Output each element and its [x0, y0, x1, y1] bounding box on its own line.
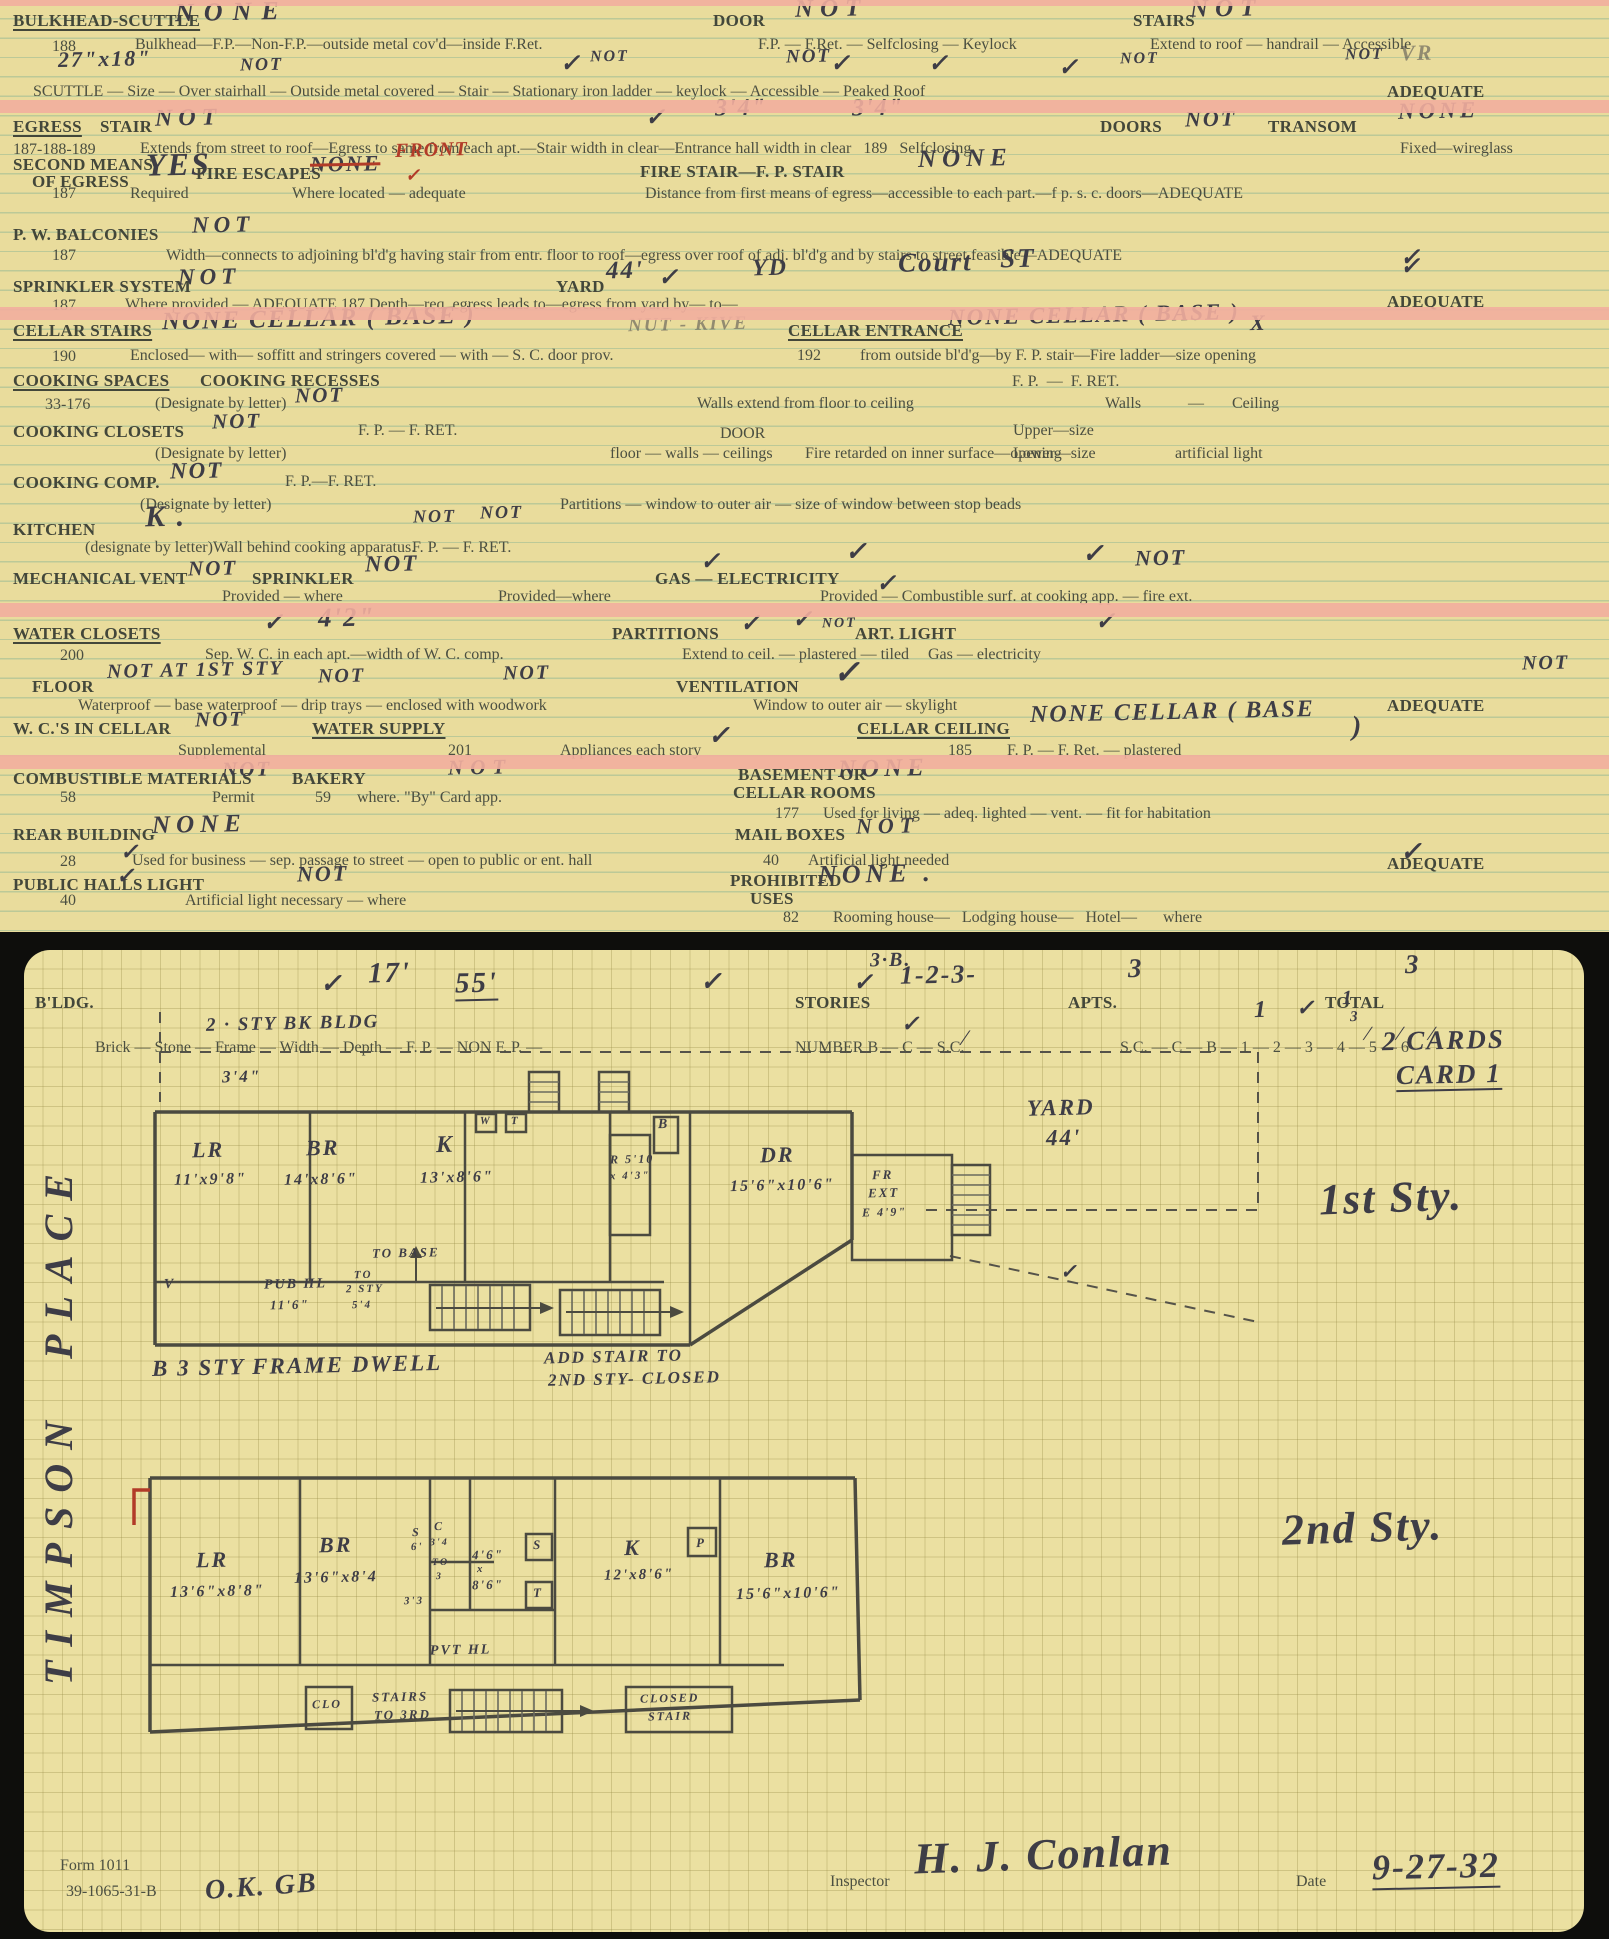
checkmark: ✓ [1058, 56, 1081, 82]
note-adjacent-building: 2 · STY BK BLDG [206, 1012, 380, 1036]
pink-rule [0, 603, 1609, 617]
value-mail-boxes: NOT [856, 813, 920, 837]
checkmark: ✓ [658, 266, 681, 292]
checkmark: ✓ [928, 52, 951, 78]
handwritten-note: 5'4 [352, 1300, 372, 1312]
value-floor: NOT AT 1ST STY [107, 658, 284, 683]
handwritten-note: x [477, 1564, 485, 1576]
value-yard-depth: 44' [606, 258, 644, 285]
label-cooking-spaces: COOKING SPACES [13, 372, 169, 390]
handwritten-note: VR [1400, 41, 1434, 65]
form-caption: Gas — electricity [928, 647, 1041, 664]
label-bldg: B'LDG. [35, 994, 94, 1012]
form-caption: Permit [212, 790, 255, 807]
value-wc-in-cellar: NOT [195, 707, 245, 730]
label-pw-balconies: P. W. BALCONIES [13, 226, 159, 244]
value-sprinkler: NOT [365, 551, 419, 576]
handwritten-note: NOT [1522, 653, 1570, 675]
form-label: OF EGRESS [32, 173, 129, 191]
floor-plan-drawing [24, 950, 1584, 1932]
label-mechanical-vent: MECHANICAL VENT [13, 570, 188, 588]
checkmark: ✓ [405, 166, 422, 185]
checkmark: ✓ [845, 538, 869, 566]
handwritten-note: 13'6"x8'8" [170, 1583, 265, 1602]
street-name: TIMPSON PLACE [38, 1160, 80, 1685]
label-yard-plan: YARD [1027, 1095, 1095, 1121]
form-label: ADEQUATE [1387, 855, 1485, 873]
form-caption: Distance from first means of egress—acce… [645, 186, 1243, 203]
form-caption: Extends from street to roof—Egress to sa… [140, 141, 971, 158]
value-cellar-ceiling: NONE CELLAR ( BASE [1030, 697, 1315, 728]
label-mail-boxes: MAIL BOXES [735, 826, 845, 844]
handwritten-note: 1 [1342, 988, 1354, 1009]
form-caption: Used for business — sep. passage to stre… [132, 853, 592, 870]
checkmark: ✓ [1082, 540, 1106, 568]
form-caption: 187 [52, 248, 76, 265]
handwritten-note: 13'x8'6" [420, 1169, 494, 1187]
label-cooking-recesses: COOKING RECESSES [200, 372, 380, 390]
value-cooking-closets: NOT [212, 409, 262, 432]
label-stories: STORIES [795, 994, 871, 1012]
form-caption: 192 [797, 348, 821, 365]
form-caption: where. "By" Card app. [357, 790, 502, 807]
handwritten-note: V [164, 1278, 176, 1293]
form-caption: F. P. — F. RET. [1012, 374, 1119, 391]
label-second-story: 2nd Sty. [1281, 1502, 1444, 1554]
form-caption: Ceiling [1232, 396, 1279, 413]
handwritten-note: E 4'9" [862, 1206, 907, 1220]
handwritten-note: 13'6"x8'4 [294, 1569, 378, 1588]
label-cooking-comp: COOKING COMP. [13, 474, 160, 492]
handwritten-note: 14'x8'6" [284, 1171, 358, 1189]
handwritten-note: 3'4 [430, 1538, 449, 1549]
form-caption: SCUTTLE — Size — Over stairhall — Outsid… [33, 84, 925, 101]
handwritten-note: T [511, 1116, 520, 1128]
handwritten-note: CLOSED [640, 1691, 700, 1705]
note-ok: O.K. GB [204, 1868, 319, 1905]
label-ventilation: VENTILATION [676, 678, 799, 696]
handwritten-note: ∕ [963, 1026, 969, 1049]
value-fire-stair: NONE [918, 145, 1013, 173]
form-caption: Lower—size [1013, 446, 1096, 463]
handwritten-note: NOT [480, 503, 523, 523]
checkmark: ✓ [1400, 246, 1423, 272]
value-public-halls-light: NOT [297, 861, 349, 885]
label-cellar-ceiling: CELLAR CEILING [857, 720, 1010, 738]
handwritten-note: 11'x9'8" [174, 1171, 247, 1189]
value-cooking-comp: NOT [170, 458, 224, 483]
label-date: Date [1296, 1874, 1326, 1891]
handwritten-note: NOT [503, 663, 551, 685]
form-caption: 177 [775, 806, 799, 823]
room-label: BR [319, 1533, 353, 1557]
label-water-closets: WATER CLOSETS [13, 625, 161, 643]
handwritten-note: NOT [590, 49, 629, 67]
label-inspector: Inspector [830, 1874, 890, 1891]
form-caption: Partitions — window to outer air — size … [560, 497, 1021, 514]
handwritten-note: PUB HL [264, 1277, 327, 1293]
handwritten-note: 15'6"x10'6" [736, 1585, 841, 1604]
room-label: K [624, 1536, 641, 1559]
form-caption: 187 [52, 186, 76, 203]
form-caption: 40 [60, 893, 76, 910]
label-combustible-materials: COMBUSTIBLE MATERIALS [13, 770, 252, 788]
handwritten-note: TO [432, 1558, 449, 1569]
form-caption: 200 [60, 648, 84, 665]
label-egress: EGRESS [13, 118, 82, 136]
handwritten-note: TO [354, 1270, 373, 1282]
label-bulkhead-scuttle: BULKHEAD-SCUTTLE [13, 12, 200, 30]
pink-rule [0, 100, 1609, 113]
label-yard: YARD [556, 278, 605, 296]
handwritten-note: NOT [1120, 51, 1159, 69]
handwritten-note: 6' [411, 1542, 424, 1554]
pink-rule [0, 755, 1609, 769]
label-sprinkler-system: SPRINKLER SYSTEM [13, 278, 191, 296]
form-caption: Rooming house— Lodging house— Hotel— [833, 910, 1137, 927]
form-caption: Bulkhead—F.P.—Non-F.P.—outside metal cov… [135, 37, 542, 54]
value-rear-building: NONE [152, 811, 247, 839]
handwritten-note: STAIR [648, 1710, 692, 1724]
handwritten-note: 11'6" [270, 1298, 310, 1312]
form-number: Form 1011 [60, 1858, 130, 1875]
form-caption: floor — walls — ceilings [610, 446, 773, 463]
form-caption: F. P. — F. RET. [358, 423, 457, 440]
label-transom: TRANSOM [1268, 118, 1357, 136]
label-water-supply: WATER SUPPLY [312, 720, 446, 738]
handwritten-note: FR [872, 1168, 894, 1182]
label-art-light: ART. LIGHT [855, 625, 956, 643]
label-egress-stair: STAIR [100, 118, 152, 136]
date-value: 9-27-32 [1372, 1847, 1501, 1890]
handwritten-note: NOT [822, 617, 857, 632]
label-door: DOOR [713, 12, 765, 30]
checkmark: ✓ [708, 722, 732, 750]
form-caption: 33-176 [45, 397, 90, 414]
handwritten-note: ∕ [1366, 1024, 1372, 1045]
form-caption: Fixed—wireglass [1400, 141, 1513, 158]
label-cooking-closets: COOKING CLOSETS [13, 423, 184, 441]
handwritten-note: T [533, 1586, 543, 1600]
handwritten-note: NOT [1345, 47, 1384, 65]
handwritten-note: 1 [1254, 998, 1269, 1023]
form-caption: Walls extend from floor to ceiling [697, 396, 914, 413]
form-caption: (designate by letter) [85, 540, 213, 557]
form-caption: 58 [60, 790, 76, 807]
handwritten-note: 2 STY [346, 1284, 384, 1296]
handwritten-note: 8'6" [472, 1578, 504, 1592]
checkmark: ✓ [700, 550, 723, 576]
handwritten-note: 4'6" [472, 1548, 504, 1562]
value-egress-from-yard: Court [898, 247, 973, 277]
handwritten-note: S [533, 1538, 543, 1552]
value-scuttle-size: 27"x18" [58, 46, 152, 71]
checkmark: ✓ [320, 970, 344, 998]
value-fire-escapes: FRONT [395, 139, 468, 162]
handwritten-note: 3'4" [222, 1068, 262, 1087]
note-building-type: B 3 STY FRAME DWELL [152, 1351, 443, 1381]
handwritten-note: C [434, 1520, 444, 1533]
value-prohibited-uses: NONE . [818, 859, 935, 889]
room-label: LR [196, 1548, 229, 1572]
handwritten-note: EXT [868, 1186, 900, 1200]
handwritten-note: NOT [1135, 545, 1187, 569]
form-caption: F. P. — F. RET. [412, 540, 511, 557]
handwritten-note: NOT [413, 507, 456, 527]
handwritten-note: 3 [436, 1572, 443, 1583]
handwritten-note: 3 [1350, 1010, 1360, 1026]
form-caption: 28 [60, 854, 76, 871]
room-label: LR [192, 1138, 225, 1162]
scanned-inspection-card-page: { "document": { "type": "Tenement house … [0, 0, 1609, 1939]
note-card-number: CARD 1 [1396, 1059, 1502, 1093]
handwritten-note: 15'6"x10'6" [730, 1177, 835, 1196]
handwritten-note: PVT HL [430, 1643, 492, 1659]
value-sprinkler-system: NOT [178, 264, 241, 289]
value-egress-leads-to: YD [752, 256, 789, 282]
inspection-form-card: BULKHEAD-SCUTTLENONEDOORNOTSTAIRSNOT188B… [0, 0, 1609, 932]
form-caption: F. P.—F. RET. [285, 474, 376, 491]
handwritten-note: 2ND STY- CLOSED [548, 1368, 721, 1389]
form-code: 39-1065-31-B [66, 1884, 157, 1901]
note-stair-closed: ADD STAIR TO [544, 1347, 683, 1368]
form-caption: Width—connects to adjoining bl'd'g havin… [166, 248, 1122, 265]
form-caption: Waterproof — base waterproof — drip tray… [78, 698, 547, 715]
handwritten-note: TO 3RD [374, 1707, 431, 1722]
handwritten-note: NOT [318, 666, 366, 688]
note-cards: 2 CARDS [1382, 1025, 1505, 1056]
form-caption: 40 [763, 853, 779, 870]
label-partitions: PARTITIONS [612, 625, 719, 643]
handwritten-note: STAIRS [372, 1689, 428, 1704]
value-total: 3 [1405, 950, 1421, 979]
room-label: BR [306, 1136, 340, 1160]
handwritten-note: 3'3 [404, 1596, 424, 1608]
handwritten-note: CLO [312, 1698, 342, 1711]
value-pw-balconies: NOT [192, 212, 255, 237]
checkmark: ✓ [1296, 996, 1317, 1020]
label-floor: FLOOR [32, 678, 94, 696]
pink-rule [0, 0, 1609, 6]
value-cooking-recesses: NOT [295, 383, 345, 406]
handwritten-note: NOT [786, 47, 831, 68]
label-apts: APTS. [1068, 994, 1117, 1012]
label-stairs: STAIRS [1133, 12, 1195, 30]
label-cellar-entrance: CELLAR ENTRANCE [788, 322, 963, 340]
label-kitchen: KITCHEN [13, 521, 95, 539]
label-sprinkler: SPRINKLER [252, 570, 354, 588]
inspector-signature: H. J. Conlan [913, 1827, 1173, 1882]
form-caption: from outside bl'd'g—by F. P. stair—Fire … [860, 348, 1256, 365]
checkmark: ✓ [116, 864, 137, 888]
form-label: CELLAR ROOMS [733, 784, 876, 802]
form-caption: Artificial light necessary — where [185, 893, 406, 910]
handwritten-note: NOT [240, 55, 283, 75]
floor-plan-card: B'LDG.✓17'55'✓STORIES3·B.✓1-2-3-APTS.3TO… [24, 950, 1584, 1932]
value-depth: 55' [455, 968, 499, 1002]
form-caption: 59 [315, 790, 331, 807]
checkmark: ✓ [833, 656, 863, 690]
checkmark: ✓ [700, 968, 724, 996]
checkmark: ✓ [830, 52, 853, 78]
form-caption: NUMBER B — C — S.C. [795, 1040, 964, 1057]
form-caption: Brick — Stone — Frame — Width — Depth — … [95, 1040, 542, 1057]
value-apts: 3 [1128, 954, 1144, 983]
label-doors: DOORS [1100, 118, 1162, 136]
handwritten-note: ST [1000, 244, 1036, 273]
form-caption: 190 [52, 349, 76, 366]
form-caption: Window to outer air — skylight [753, 698, 957, 715]
handwritten-note: R 5'10 [610, 1153, 655, 1167]
checkmark: ✓ [1060, 1262, 1079, 1283]
form-caption: artificial light [1175, 446, 1263, 463]
handwritten-note: B [658, 1118, 670, 1133]
handwritten-note: ) [1352, 712, 1364, 742]
value-mechanical-vent: NOT [188, 556, 238, 579]
value-width: 17' [368, 958, 412, 989]
form-caption: Upper—size [1013, 423, 1094, 440]
checkmark: ✓ [901, 1012, 922, 1036]
value-fire-escapes-struck: NONE [310, 151, 381, 176]
checkmark: ✓ [876, 572, 899, 598]
form-caption: — [1188, 396, 1204, 413]
label-cellar-stairs: CELLAR STAIRS [13, 322, 152, 340]
red-correction-mark [134, 1490, 150, 1525]
handwritten-note: x 4'3" [610, 1171, 651, 1183]
room-label: BR [764, 1548, 798, 1572]
form-caption: Enclosed— with— soffitt and stringers co… [130, 348, 614, 365]
handwritten-note: S [412, 1526, 421, 1539]
checkmark: ✓ [853, 971, 876, 997]
value-stories: 1-2-3- [900, 960, 978, 989]
form-caption: 82 [783, 910, 799, 927]
value-kitchen: K . [145, 501, 187, 533]
form-caption: Walls [1105, 396, 1141, 413]
room-label: DR [760, 1143, 795, 1167]
form-caption: where [1163, 910, 1202, 927]
form-caption: Where located — adequate [292, 186, 466, 203]
label-wc-in-cellar: W. C.'S IN CELLAR [13, 720, 171, 738]
handwritten-note: 44' [1046, 1126, 1082, 1151]
handwritten-note: P [696, 1536, 706, 1550]
label-fire-stair: FIRE STAIR—F. P. STAIR [640, 163, 845, 181]
checkmark: ✓ [560, 52, 583, 78]
form-caption: Required [130, 186, 189, 203]
room-label: K [436, 1133, 455, 1159]
handwritten-note: W [480, 1116, 492, 1128]
pink-rule [0, 307, 1609, 320]
form-label: ADEQUATE [1387, 697, 1485, 715]
form-label: USES [750, 890, 794, 908]
form-caption: DOOR [720, 426, 765, 443]
label-first-story: 1st Sty. [1318, 1173, 1463, 1224]
handwritten-note: 12'x8'6" [604, 1567, 674, 1584]
label-bakery: BAKERY [292, 770, 366, 788]
form-caption: Extend to ceil. — plastered — tiled [682, 647, 909, 664]
label-gas-electricity: GAS — ELECTRICITY [655, 570, 840, 588]
handwritten-note: TO BASE [372, 1245, 440, 1260]
label-fire-escapes: FIRE ESCAPES [196, 165, 321, 183]
